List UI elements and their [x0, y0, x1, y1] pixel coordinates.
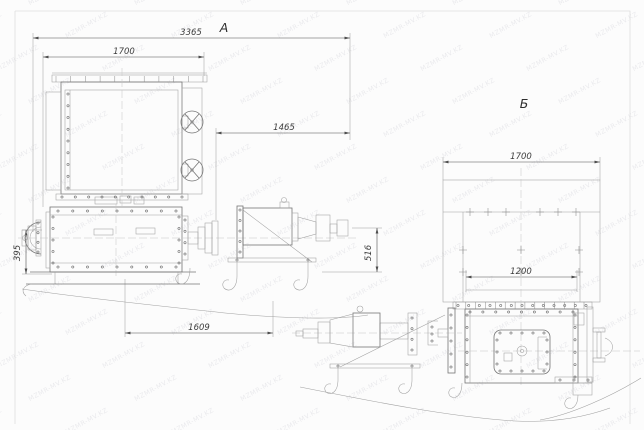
dim-516-label: 516: [364, 244, 374, 261]
flange-ticks: [56, 76, 584, 309]
dim-overall-length: 3365: [33, 28, 350, 232]
dim-base-length: 1609: [125, 279, 273, 337]
view-a-label: А: [219, 20, 229, 35]
skid-side: [300, 364, 641, 421]
drive-assembly-side: [292, 306, 462, 373]
dim-hopper-width-a: 1700: [43, 47, 204, 207]
view-b-label: Б: [520, 96, 529, 111]
technical-drawing: А 3365 1700 1465 1: [0, 0, 644, 430]
dim-1700b-label: 1700: [510, 152, 532, 162]
dim-1700a-label: 1700: [113, 47, 135, 57]
handwheel-valves: [181, 111, 203, 181]
dim-outlet-width: 1200: [466, 267, 577, 292]
dim-hopper-width-b: 1700: [443, 152, 600, 180]
dim-395-label: 395: [13, 245, 23, 261]
dim-drive-height: 516: [322, 228, 382, 272]
view-a: А 3365 1700 1465 1: [13, 20, 382, 337]
access-panel: [494, 330, 550, 374]
hopper-side: [443, 168, 600, 388]
dim-1465-label: 1465: [273, 123, 295, 133]
hopper-front: [46, 68, 207, 206]
body-front: [46, 204, 188, 276]
view-b: Б 1700 1200: [292, 96, 641, 421]
dim-1609-label: 1609: [188, 323, 210, 333]
dim-3365-label: 3365: [180, 28, 202, 38]
drawing-sheet: MZMR-MV.KZMZMR-MV.KZMZMR-MV.KZMZMR-MV.KZ…: [0, 0, 644, 430]
dim-drive-length: 1465: [216, 123, 350, 220]
